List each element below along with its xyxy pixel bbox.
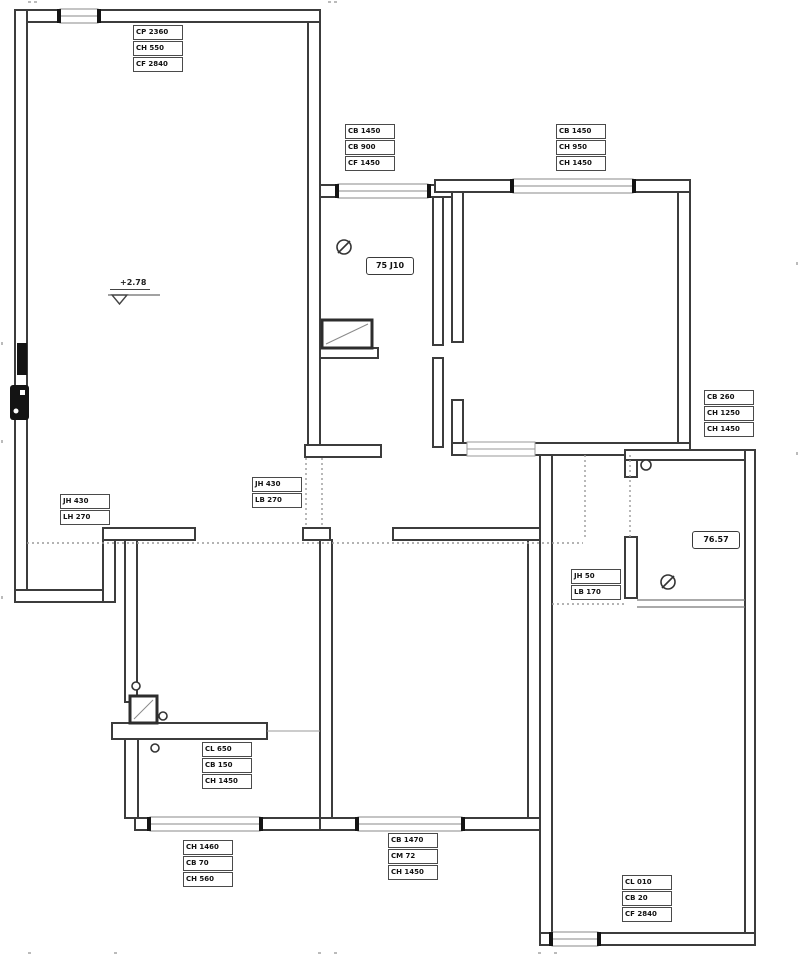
wall-segment	[320, 540, 332, 818]
wall-segment	[15, 10, 27, 602]
meter-box-icon	[10, 385, 29, 420]
dim-row: CH 1460	[183, 840, 233, 855]
pipe-circle-icon	[641, 460, 651, 470]
wall-segment	[112, 723, 267, 739]
window	[57, 9, 101, 23]
pipe-circle-icon	[151, 744, 159, 752]
panel-icon	[17, 343, 27, 375]
dim-label-hall-right: JH 50 LB 170	[571, 569, 621, 600]
wall-segment	[745, 450, 755, 945]
window	[335, 184, 431, 198]
wall-segment	[625, 537, 637, 598]
dim-row: CM 72	[388, 849, 438, 864]
dim-label-right: CB 260 CH 1250 CH 1450	[704, 390, 754, 437]
wall-opening	[467, 442, 535, 456]
dim-row: CH 1250	[704, 406, 754, 421]
dim-row: LB 270	[252, 493, 302, 508]
wall-segment	[678, 192, 690, 455]
dim-row: CH 550	[133, 41, 183, 56]
dim-label-bottom-left: CH 1460 CB 70 CH 560	[183, 840, 233, 887]
dim-label-bottom-middle: CB 1470 CM 72 CH 1450	[388, 833, 438, 880]
dim-row: JH 50	[571, 569, 621, 584]
dim-row: CB 1470	[388, 833, 438, 848]
window	[549, 932, 601, 946]
wall-segment	[452, 192, 463, 342]
dim-row: CH 1450	[704, 422, 754, 437]
dim-row: CL 010	[622, 875, 672, 890]
dim-row: CF 2840	[133, 57, 183, 72]
edge-marks	[1, 1, 798, 954]
dim-row: CH 1450	[202, 774, 252, 789]
dim-row: CH 560	[183, 872, 233, 887]
floor-drain-icon	[661, 575, 675, 589]
window	[510, 179, 636, 193]
wall-segment	[103, 528, 195, 540]
wall-segment	[103, 540, 115, 602]
dim-row: JH 430	[60, 494, 110, 509]
wall-segment	[528, 540, 540, 818]
window	[147, 817, 263, 831]
dim-row: CP 2360	[133, 25, 183, 40]
dim-label-top-middle: CB 1450 CB 900 CF 1450	[345, 124, 395, 171]
wall-segment	[393, 528, 540, 540]
dim-row: CB 1450	[556, 124, 606, 139]
wall-segment	[452, 400, 463, 443]
wall-segment	[308, 22, 320, 455]
plumbing-points	[132, 460, 651, 752]
elevation-marker: +2.78	[110, 278, 150, 290]
pipe-circle-icon	[159, 712, 167, 720]
dim-label-top-right: CB 1450 CH 950 CH 1450	[556, 124, 606, 171]
floor-plan-drawing	[0, 0, 800, 957]
dim-row: CB 900	[345, 140, 395, 155]
wall-segment	[433, 358, 443, 447]
dim-row: CB 1450	[345, 124, 395, 139]
room-tag-bathroom: 75 J10	[366, 257, 414, 275]
wall-segment	[125, 540, 137, 702]
dim-label-top-left: CP 2360 CH 550 CF 2840	[133, 25, 183, 72]
wall-segment	[303, 528, 330, 540]
dim-label-hall-left: JH 430 LH 270	[60, 494, 110, 525]
wall-segment	[540, 455, 552, 933]
pipe-circle-icon	[132, 682, 140, 690]
dim-row: CB 260	[704, 390, 754, 405]
wall-segment	[15, 590, 115, 602]
wall-segment	[625, 460, 637, 477]
wall-segment	[125, 739, 138, 818]
dim-row: CB 150	[202, 758, 252, 773]
dim-row: CL 650	[202, 742, 252, 757]
dim-row: LB 170	[571, 585, 621, 600]
dim-row: CB 70	[183, 856, 233, 871]
elevation-value: +2.78	[110, 278, 150, 290]
elevation-triangle-icon	[108, 295, 160, 304]
corner-shower-tray	[130, 696, 157, 723]
low-partition	[637, 600, 745, 607]
windows	[57, 9, 745, 946]
dim-row: CB 20	[622, 891, 672, 906]
dim-row: LH 270	[60, 510, 110, 525]
floor-drain-icon	[337, 240, 351, 254]
dim-label-bottom-right: CL 010 CB 20 CF 2840	[622, 875, 672, 922]
dim-row: CH 1450	[556, 156, 606, 171]
dim-label-hall-middle: JH 430 LB 270	[252, 477, 302, 508]
room-tag-suite: 76.57	[692, 531, 740, 549]
dim-row: CF 1450	[345, 156, 395, 171]
wall-segment	[625, 450, 755, 460]
wall-segment	[433, 197, 443, 345]
dim-row: CF 2840	[622, 907, 672, 922]
dim-row: CH 950	[556, 140, 606, 155]
dim-label-bottom-left-mid: CL 650 CB 150 CH 1450	[202, 742, 252, 789]
dim-row: CH 1450	[388, 865, 438, 880]
window	[355, 817, 465, 831]
dim-row: JH 430	[252, 477, 302, 492]
floor-plan-canvas: CP 2360 CH 550 CF 2840 CB 1450 CB 900 CF…	[0, 0, 800, 957]
shower-tray	[322, 320, 372, 348]
wall-segment	[305, 445, 381, 457]
